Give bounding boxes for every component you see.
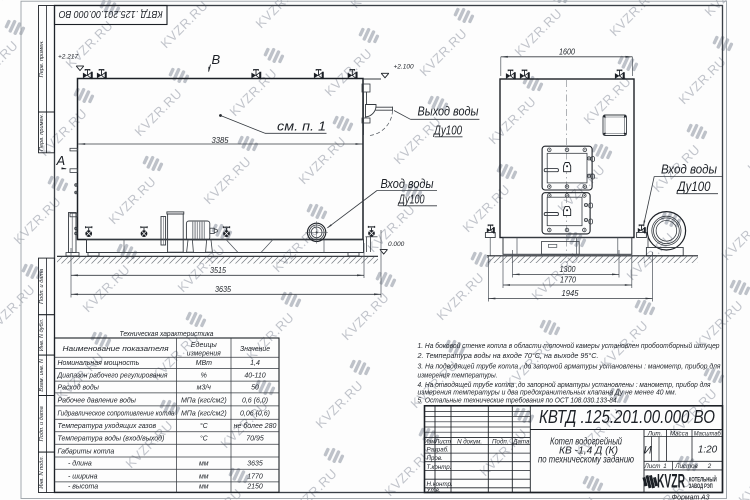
svg-text:N докум.: N докум. [457, 438, 482, 445]
svg-text:Ду100: Ду100 [676, 178, 711, 194]
svg-text:°С: °С [200, 435, 209, 443]
svg-text:3515: 3515 [210, 265, 226, 275]
svg-text:2: 2 [707, 463, 712, 470]
svg-text:KVZR: KVZR [657, 471, 685, 492]
svg-text:- длина: - длина [68, 460, 92, 468]
svg-text:не более 280: не более 280 [234, 422, 277, 430]
svg-text:Вход воды: Вход воды [381, 176, 434, 191]
svg-text:Перв. примен.: Перв. примен. [39, 114, 45, 151]
svg-text:5. Остальные технические треб: 5. Остальные технические требования по О… [418, 395, 619, 404]
svg-text:Гидравлическое сопротивление к: Гидравлическое сопротивление котла [58, 410, 175, 418]
svg-text:измерения: измерения [187, 348, 221, 357]
svg-text:Температура воды (вход/выход): Температура воды (вход/выход) [58, 435, 165, 443]
svg-text:Подп. и дата: Подп. и дата [39, 406, 45, 441]
svg-text:мм: мм [199, 473, 209, 480]
svg-text:3385: 3385 [212, 135, 229, 145]
svg-text:70/95: 70/95 [246, 436, 264, 443]
svg-text:Формат: Формат [672, 494, 700, 500]
svg-text:1: 1 [663, 463, 666, 470]
svg-text:1770: 1770 [247, 473, 263, 480]
svg-text:+2.100: +2.100 [394, 64, 414, 71]
svg-text:0,06 (0,6): 0,06 (0,6) [240, 411, 270, 418]
svg-text:Диапазон рабочего регулировани: Диапазон рабочего регулирования [57, 372, 168, 380]
svg-text:2. Температура воды на входе: 2. Температура воды на входе 70°С, на вы… [417, 351, 599, 360]
svg-text:КВТД .125.201.00.000 ВО: КВТД .125.201.00.000 ВО [539, 407, 715, 427]
svg-text:Техническая характеристика: Техническая характеристика [120, 329, 214, 338]
svg-text:Масштаб: Масштаб [694, 430, 721, 437]
svg-text:мм: мм [199, 484, 209, 491]
svg-text:°С: °С [200, 422, 209, 430]
svg-text:50: 50 [251, 384, 259, 391]
svg-text:A: A [56, 153, 66, 168]
svg-text:2150: 2150 [246, 484, 263, 491]
svg-text:Лист: Лист [434, 438, 451, 445]
svg-text:Пров.: Пров. [427, 455, 443, 462]
svg-text:Листов: Листов [674, 463, 698, 470]
svg-text:Выход воды: Выход воды [418, 104, 479, 119]
svg-text:Расход воды: Расход воды [58, 383, 100, 391]
svg-text:1:20: 1:20 [698, 445, 718, 456]
svg-text:1300: 1300 [560, 264, 576, 274]
svg-text:МПа (кгс/см2): МПа (кгс/см2) [181, 397, 227, 404]
svg-text:Разраб.: Разраб. [427, 447, 449, 454]
svg-text:Значение: Значение [240, 344, 270, 353]
svg-text:Масса: Масса [670, 430, 689, 437]
svg-text:Утв.: Утв. [426, 487, 441, 494]
svg-text:А3: А3 [700, 494, 710, 500]
svg-text:Лист: Лист [644, 463, 661, 470]
svg-text:1,4: 1,4 [250, 360, 260, 367]
svg-text:Номинальная мощность: Номинальная мощность [58, 360, 140, 367]
svg-text:3. На подводящей трубе котла: 3. На подводящей трубе котла , до запорн… [418, 361, 721, 370]
svg-text:Наименование показателя: Наименование показателя [63, 344, 169, 353]
svg-text:ЗАВОД РЭП: ЗАВОД РЭП [689, 483, 713, 490]
svg-text:Вход воды: Вход воды [661, 162, 717, 177]
svg-text:Инв. N подл.: Инв. N подл. [39, 456, 45, 489]
svg-text:см. п. 1: см. п. 1 [277, 119, 326, 134]
svg-text:3635: 3635 [247, 461, 263, 468]
svg-text:по техническому заданию: по техническому заданию [538, 454, 634, 466]
svg-text:Перв. примен.: Перв. примен. [39, 40, 45, 77]
svg-text:Ду100: Ду100 [397, 192, 425, 207]
svg-text:КВТД .125.201.00.000 ВО: КВТД .125.201.00.000 ВО [59, 8, 163, 20]
svg-text:1. На боковой стенке котла в: 1. На боковой стенке котла в области топ… [418, 341, 720, 350]
svg-text:Температура уходящих газов: Температура уходящих газов [58, 422, 157, 430]
svg-text:+2.217: +2.217 [58, 54, 78, 61]
svg-text:МВт: МВт [196, 360, 213, 367]
svg-text:0.000: 0.000 [388, 241, 405, 248]
svg-text:Т.контр.: Т.контр. [427, 464, 452, 471]
svg-text:И: И [644, 445, 652, 457]
svg-text:0,6 (6,0): 0,6 (6,0) [242, 397, 268, 404]
svg-text:Рабочее давление воды: Рабочее давление воды [58, 396, 137, 404]
svg-text:Ду100: Ду100 [433, 123, 463, 138]
svg-text:1945: 1945 [562, 288, 579, 298]
svg-text:мм: мм [199, 461, 209, 468]
svg-text:м3/ч: м3/ч [197, 384, 212, 391]
svg-text:Взам. инв. N: Взам. инв. N [39, 358, 45, 392]
svg-text:%: % [201, 373, 207, 380]
svg-text:Подп.: Подп. [492, 438, 508, 445]
svg-text:- высота: - высота [68, 484, 98, 491]
svg-text:измерения температуры.: измерения температуры. [418, 371, 498, 380]
svg-text:Инв. N дубл.: Инв. N дубл. [39, 319, 45, 351]
svg-text:1770: 1770 [560, 275, 576, 285]
svg-text:Лит.: Лит. [647, 430, 663, 437]
svg-text:МПа (кгс/см2): МПа (кгс/см2) [181, 411, 227, 418]
svg-text:B: B [212, 52, 221, 67]
svg-text:3635: 3635 [215, 284, 231, 294]
svg-text:Габариты котла: Габариты котла [58, 447, 115, 455]
svg-text:40-110: 40-110 [244, 373, 265, 380]
svg-text:Дата: Дата [512, 438, 530, 445]
svg-text:Подп. и дата: Подп. и дата [39, 269, 45, 304]
svg-text:- ширина: - ширина [68, 473, 98, 480]
svg-text:1600: 1600 [559, 46, 575, 56]
